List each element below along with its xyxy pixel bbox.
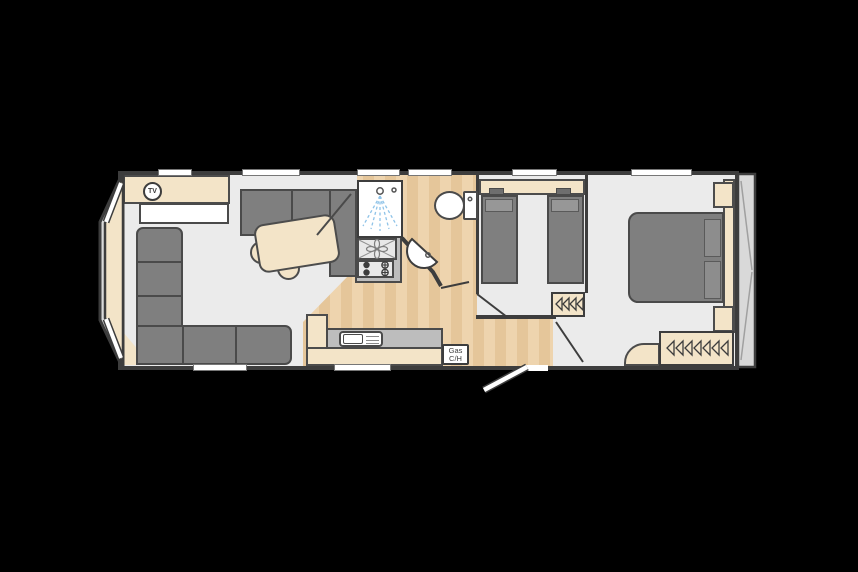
tv-cabinet (139, 203, 229, 224)
master-bedside-bottom (713, 306, 734, 332)
master-pillow-bottom (704, 261, 721, 299)
entrance-door-leaf (484, 367, 527, 390)
end-cap-panel (738, 174, 755, 367)
gas-hob-unit (357, 260, 394, 278)
toilet-cistern (463, 191, 478, 220)
window (357, 169, 400, 176)
window (408, 169, 452, 176)
twin-wardrobe (551, 292, 585, 317)
sink-drainer-line (366, 340, 379, 341)
twin-bed-2-headrest (556, 188, 571, 195)
sink-bowl (343, 334, 363, 344)
sofa-cushion-divider (138, 261, 181, 263)
tv-marker: TV (143, 182, 162, 201)
wall-master-left (585, 175, 589, 293)
window (193, 364, 247, 371)
gas-label-line2: C/H (449, 355, 462, 363)
twin-bed-2-pillow (551, 199, 579, 212)
sofa-left-arm (136, 227, 183, 327)
toilet-bowl (434, 191, 465, 220)
wall-twin-bottom (476, 315, 556, 319)
tv-label: TV (148, 188, 157, 195)
fan-oven-unit (357, 238, 397, 260)
kitchen-step-unit (306, 314, 328, 349)
end-cap-seam (741, 181, 752, 270)
end-cap-seam (741, 272, 752, 360)
master-wardrobe (659, 331, 734, 366)
twin-bed-1-pillow (485, 199, 513, 212)
window (631, 169, 692, 176)
shower-cubicle (357, 180, 403, 238)
sink-drainer-line (366, 336, 379, 337)
gas-central-heating-box: Gas C/H (442, 344, 469, 365)
sofa-bottom-arm (136, 325, 292, 365)
window (242, 169, 300, 176)
entrance-door-opening (524, 365, 548, 371)
rear-end-cap (738, 174, 755, 367)
twin-bed-1-headrest (489, 188, 504, 195)
tv-shelf (123, 175, 230, 204)
master-pillow-top (704, 219, 721, 257)
sink-drainer-line (366, 343, 379, 344)
window (334, 364, 391, 371)
floorplan-canvas: TV Gas C/H (0, 0, 858, 572)
window (158, 169, 192, 176)
master-bedside-top (713, 182, 734, 208)
sofa-cushion-divider (138, 295, 181, 297)
sofa-cushion-divider (182, 327, 184, 363)
sofa-cushion-divider (235, 327, 237, 363)
window (512, 169, 557, 176)
